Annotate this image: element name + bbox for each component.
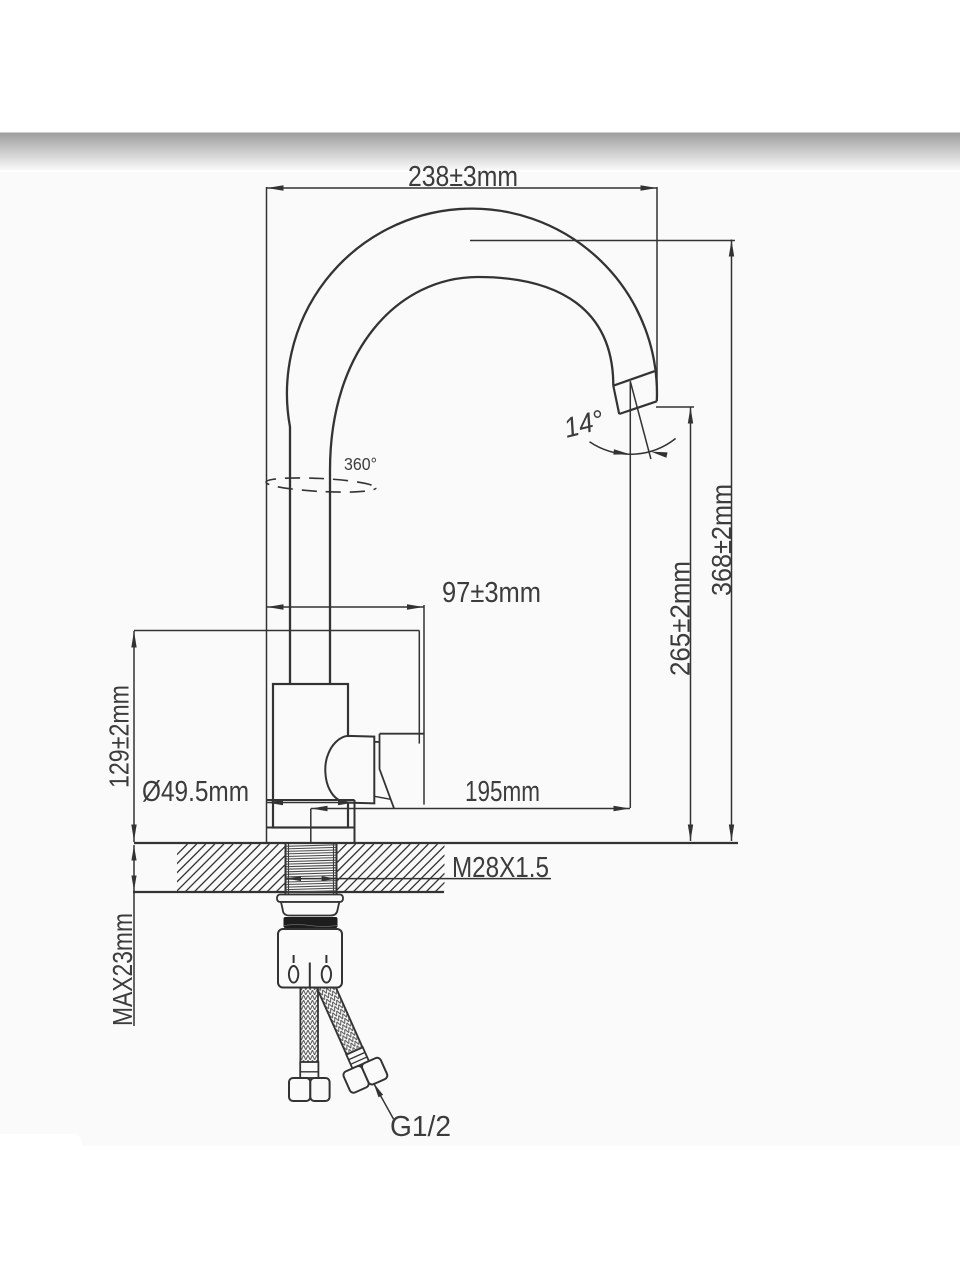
svg-text:97±3mm: 97±3mm — [442, 577, 541, 609]
svg-text:G1/2: G1/2 — [390, 1111, 451, 1143]
svg-text:M28X1.5: M28X1.5 — [452, 852, 549, 884]
svg-text:265±2mm: 265±2mm — [665, 561, 696, 676]
svg-text:MAX23mm: MAX23mm — [107, 913, 138, 1026]
svg-text:368±2mm: 368±2mm — [706, 484, 737, 596]
svg-text:360°: 360° — [344, 454, 377, 474]
svg-text:129±2mm: 129±2mm — [104, 685, 135, 788]
svg-text:Ø49.5mm: Ø49.5mm — [142, 776, 249, 808]
svg-text:195mm: 195mm — [465, 776, 540, 808]
svg-text:238±3mm: 238±3mm — [408, 161, 518, 193]
